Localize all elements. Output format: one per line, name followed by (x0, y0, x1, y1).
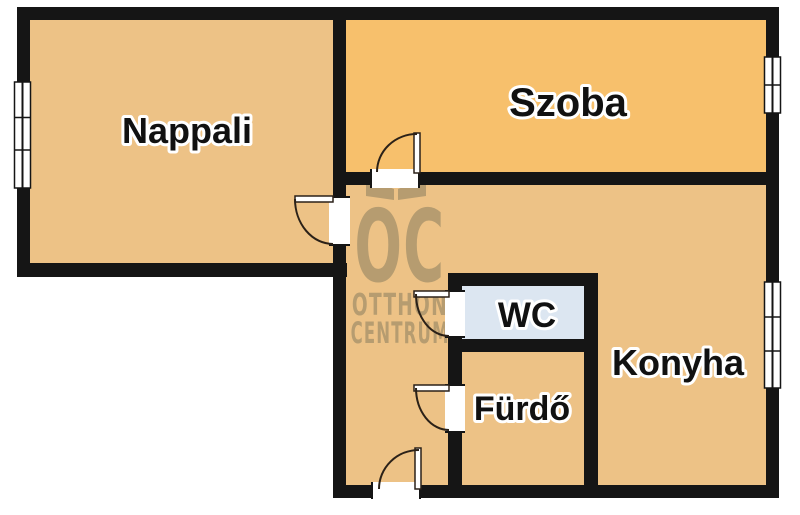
wall-wc-box-top (448, 273, 598, 286)
wc-door-opening (445, 291, 465, 337)
floor-plan-drawing: OC OTTHON CENTRUM (0, 0, 800, 515)
watermark-logo: OC OTTHON CENTRUM (351, 178, 450, 350)
room-label-konyha: Konyha (612, 342, 745, 383)
window-symbol-szoba-right (765, 57, 781, 113)
wall-nappali-bottom (17, 263, 347, 277)
room-label-wc: WC (498, 296, 556, 335)
room-label-nappali: Nappali (122, 110, 252, 151)
room-label-szoba: Szoba (509, 81, 628, 125)
wall-wc-furdo-divider (448, 339, 598, 352)
window-symbol-konyha-right (765, 282, 781, 388)
wall-wc-box-right (584, 273, 598, 498)
szoba-door-opening (371, 169, 419, 188)
nappali-door-opening (329, 197, 350, 245)
room-label-furdo: Fürdő (474, 390, 570, 428)
wall-central-vertical (333, 7, 346, 498)
furdo-door-opening (445, 385, 465, 432)
wall-outer-top (17, 7, 779, 20)
floor-plan-canvas: OC OTTHON CENTRUM (0, 0, 800, 515)
window-symbol-nappali-left (15, 82, 31, 188)
